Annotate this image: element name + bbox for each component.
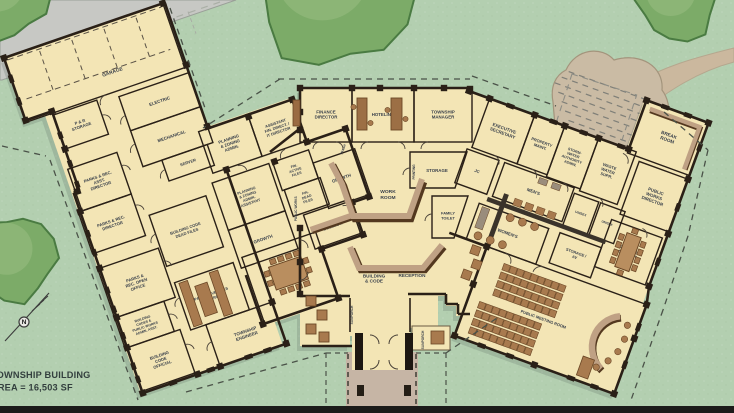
svg-text:PUBLIC WORKS: PUBLIC WORKS (294, 196, 298, 221)
svg-text:BUILDING& CODE: BUILDING& CODE (363, 273, 386, 283)
svg-text:N: N (22, 319, 27, 326)
svg-text:SUNPORCH: SUNPORCH (421, 330, 425, 349)
svg-text:SUNPORCH: SUNPORCH (350, 305, 354, 324)
svg-text:TOWNSHIP BUILDING: TOWNSHIP BUILDING (0, 370, 91, 380)
svg-text:RECEPTION: RECEPTION (399, 273, 427, 278)
svg-text:PRINTING: PRINTING (412, 164, 416, 180)
svg-text:FAMILYTOILET: FAMILYTOILET (441, 211, 455, 221)
svg-text:FINANCEDIRECTOR: FINANCEDIRECTOR (315, 110, 339, 120)
svg-text:STORAGE: STORAGE (426, 168, 448, 173)
svg-text:TOWNSHIPMANAGER: TOWNSHIPMANAGER (431, 110, 455, 120)
svg-text:AREA = 16,503 SF: AREA = 16,503 SF (0, 383, 73, 393)
svg-text:WORKROOM: WORKROOM (380, 189, 396, 201)
